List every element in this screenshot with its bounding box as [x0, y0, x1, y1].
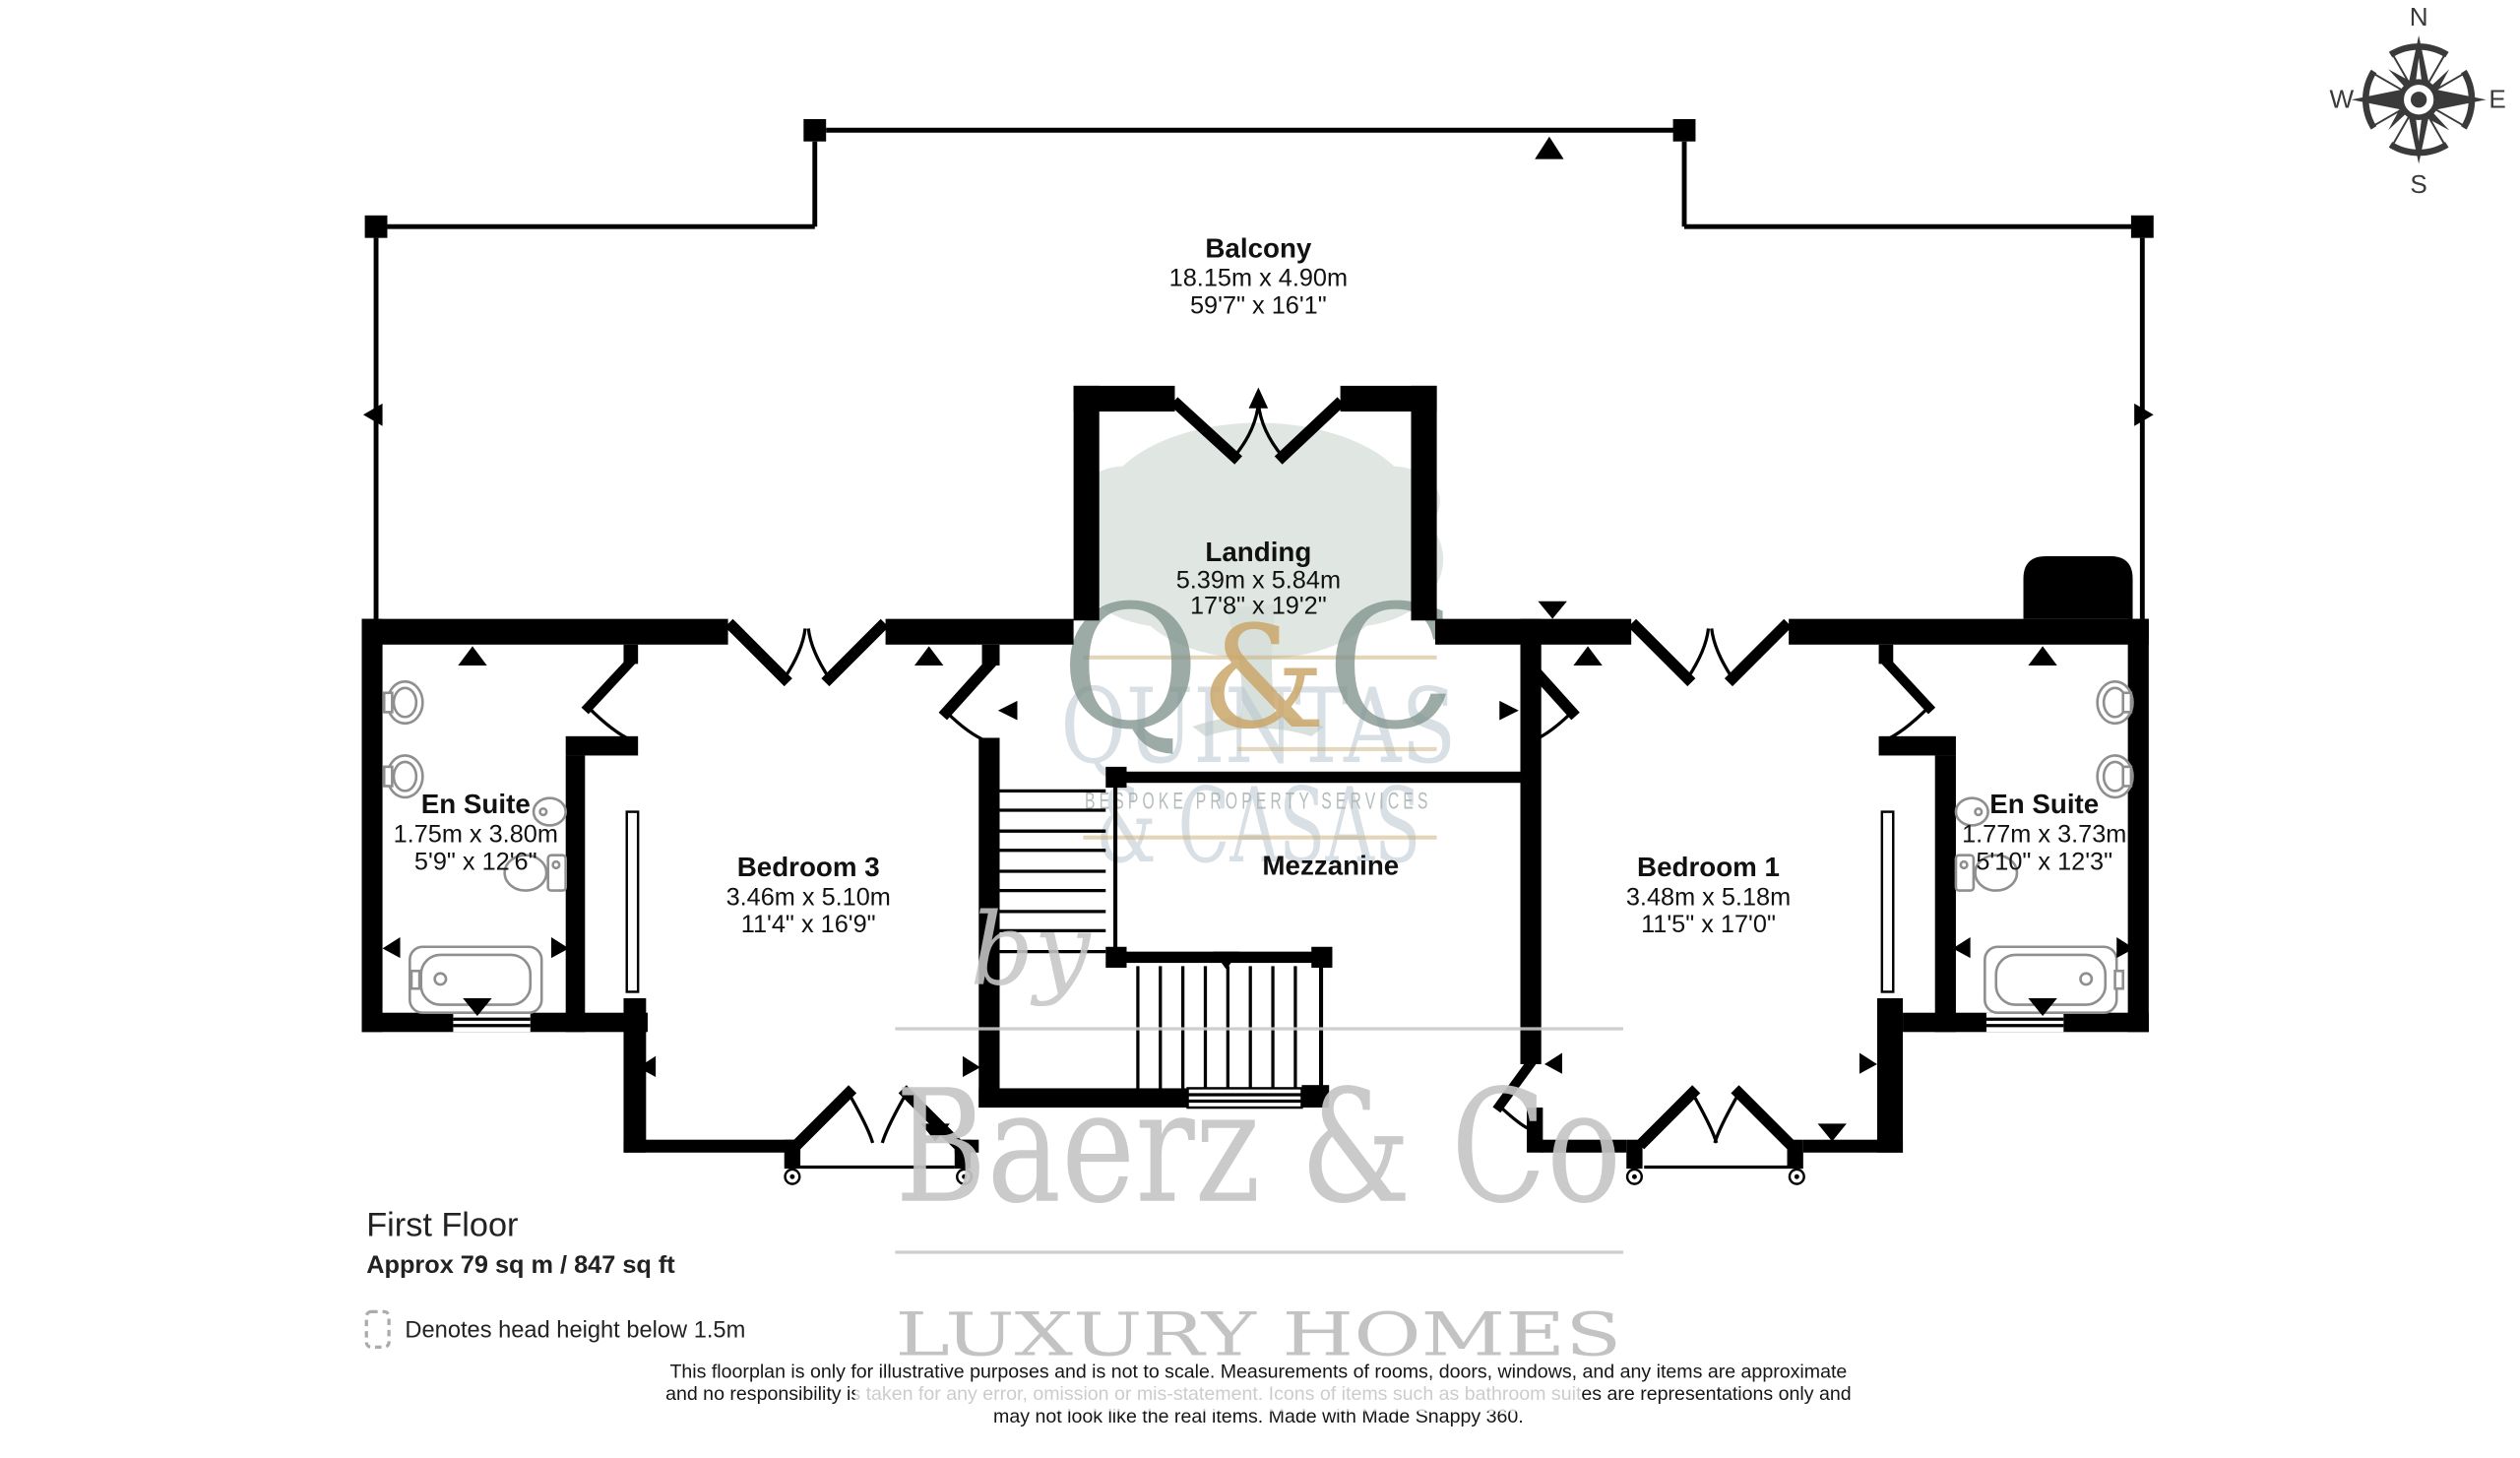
- french-window-bedroom3-top: [732, 627, 880, 678]
- svg-text:5'9" x 12'6": 5'9" x 12'6": [414, 848, 537, 875]
- plan-area: Approx 79 sq m / 847 sq ft: [366, 1251, 675, 1279]
- arrow-down-icon: [1538, 602, 1566, 619]
- floorplan-page: QUINTAS & CASAS Q&C BESPOKE PROPERTY SER…: [0, 0, 2520, 1458]
- balcony-post: [803, 119, 826, 142]
- watermark-tagline: BESPOKE PROPERTY SERVICES: [1085, 788, 1432, 814]
- compass-south: S: [2410, 169, 2426, 199]
- french-window-bedroom1-bottom: [1627, 1093, 1804, 1183]
- room-label-ensuite-left: En Suite 1.75m x 3.80m 5'9" x 12'6": [394, 789, 558, 875]
- floorplan-canvas: QUINTAS & CASAS Q&C BESPOKE PROPERTY SER…: [0, 0, 2520, 1458]
- wardrobe-slot-right: [1882, 812, 1893, 992]
- balcony-post: [1673, 119, 1696, 142]
- arrow-up-icon: [458, 646, 486, 666]
- svg-text:Bedroom 1: Bedroom 1: [1637, 852, 1780, 882]
- svg-text:59'7" x 16'1": 59'7" x 16'1": [1190, 291, 1327, 319]
- watermark-brand: Baerz & Co: [895, 1057, 1621, 1238]
- svg-text:18.15m x 4.90m: 18.15m x 4.90m: [1169, 265, 1348, 292]
- arrow-up-icon: [1573, 646, 1602, 666]
- arrow-up-icon: [914, 646, 943, 666]
- compass-west: W: [2329, 84, 2354, 113]
- plan-title-block: First Floor Approx 79 sq m / 847 sq ft: [366, 1207, 675, 1280]
- legend: Denotes head height below 1.5m: [366, 1311, 745, 1347]
- watermark-brand-tagline: LUXURY HOMES: [895, 1300, 1621, 1369]
- svg-text:Landing: Landing: [1205, 537, 1311, 567]
- legend-label: Denotes head height below 1.5m: [405, 1318, 745, 1344]
- arrow-left-icon: [998, 701, 1018, 721]
- arrow-up-icon: [2028, 646, 2056, 666]
- page-title: First Floor: [366, 1207, 518, 1244]
- svg-text:Bedroom 3: Bedroom 3: [737, 852, 880, 882]
- arrow-left-icon: [363, 404, 383, 426]
- balcony-post: [365, 216, 388, 238]
- svg-text:11'4" x 16'9": 11'4" x 16'9": [741, 911, 876, 938]
- svg-text:5.39m x 5.84m: 5.39m x 5.84m: [1176, 567, 1341, 595]
- room-label-mezzanine: Mezzanine: [1262, 850, 1399, 880]
- svg-text:5'10" x 12'3": 5'10" x 12'3": [1976, 848, 2112, 875]
- arrow-right-icon: [1499, 701, 1519, 721]
- compass-rose-icon: N E S W: [2329, 2, 2505, 199]
- room-label-balcony: Balcony 18.15m x 4.90m 59'7" x 16'1": [1169, 232, 1348, 319]
- svg-text:1.75m x 3.80m: 1.75m x 3.80m: [394, 821, 558, 849]
- room-label-bedroom1: Bedroom 1 3.48m x 5.18m 11'5" x 17'0": [1626, 852, 1791, 938]
- svg-text:Mezzanine: Mezzanine: [1262, 850, 1399, 880]
- svg-text:11'5" x 17'0": 11'5" x 17'0": [1641, 911, 1776, 938]
- door-ensuite-right: [1883, 663, 1928, 741]
- arrow-right-icon: [1859, 1053, 1877, 1074]
- washbasin-icon: [2098, 681, 2133, 797]
- svg-text:En Suite: En Suite: [421, 789, 531, 819]
- washbasin-icon: [384, 681, 422, 797]
- quintas-casas-watermark: QUINTAS & CASAS Q&C BESPOKE PROPERTY SER…: [1060, 422, 1456, 886]
- compass-north: N: [2410, 2, 2428, 32]
- arrow-left-icon: [383, 937, 401, 958]
- svg-text:17'8" x 19'2": 17'8" x 19'2": [1190, 593, 1327, 620]
- baerz-watermark: by Baerz & Co LUXURY HOMES: [855, 891, 1623, 1411]
- svg-text:Balcony: Balcony: [1205, 232, 1312, 263]
- compass-east: E: [2488, 84, 2505, 113]
- ensuite-window-right: [1986, 1013, 2063, 1033]
- door-ensuite-left: [589, 663, 634, 741]
- room-label-ensuite-right: En Suite 1.77m x 3.73m 5'10" x 12'3": [1962, 789, 2126, 875]
- watermark-band: [855, 1384, 1582, 1412]
- watermark-by: by: [971, 891, 1093, 1007]
- balcony-post: [2131, 216, 2154, 238]
- head-height-icon: [366, 1311, 389, 1347]
- wardrobe-slot-left: [627, 812, 638, 992]
- arrow-up-icon: [1535, 137, 1563, 159]
- ensuite-window-left: [453, 1013, 530, 1033]
- svg-text:1.77m x 3.73m: 1.77m x 3.73m: [1962, 821, 2126, 849]
- chimney-breast: [2024, 556, 2133, 619]
- svg-text:En Suite: En Suite: [1989, 789, 2099, 819]
- french-window-bedroom1-top: [1636, 627, 1784, 678]
- room-label-bedroom3: Bedroom 3 3.46m x 5.10m 11'4" x 16'9": [726, 852, 891, 938]
- door-bedroom3: [947, 664, 997, 744]
- arrow-down-icon: [1818, 1123, 1847, 1141]
- svg-text:3.46m x 5.10m: 3.46m x 5.10m: [726, 883, 891, 911]
- svg-text:3.48m x 5.18m: 3.48m x 5.18m: [1626, 883, 1791, 911]
- bathtub-icon: [1984, 947, 2122, 1013]
